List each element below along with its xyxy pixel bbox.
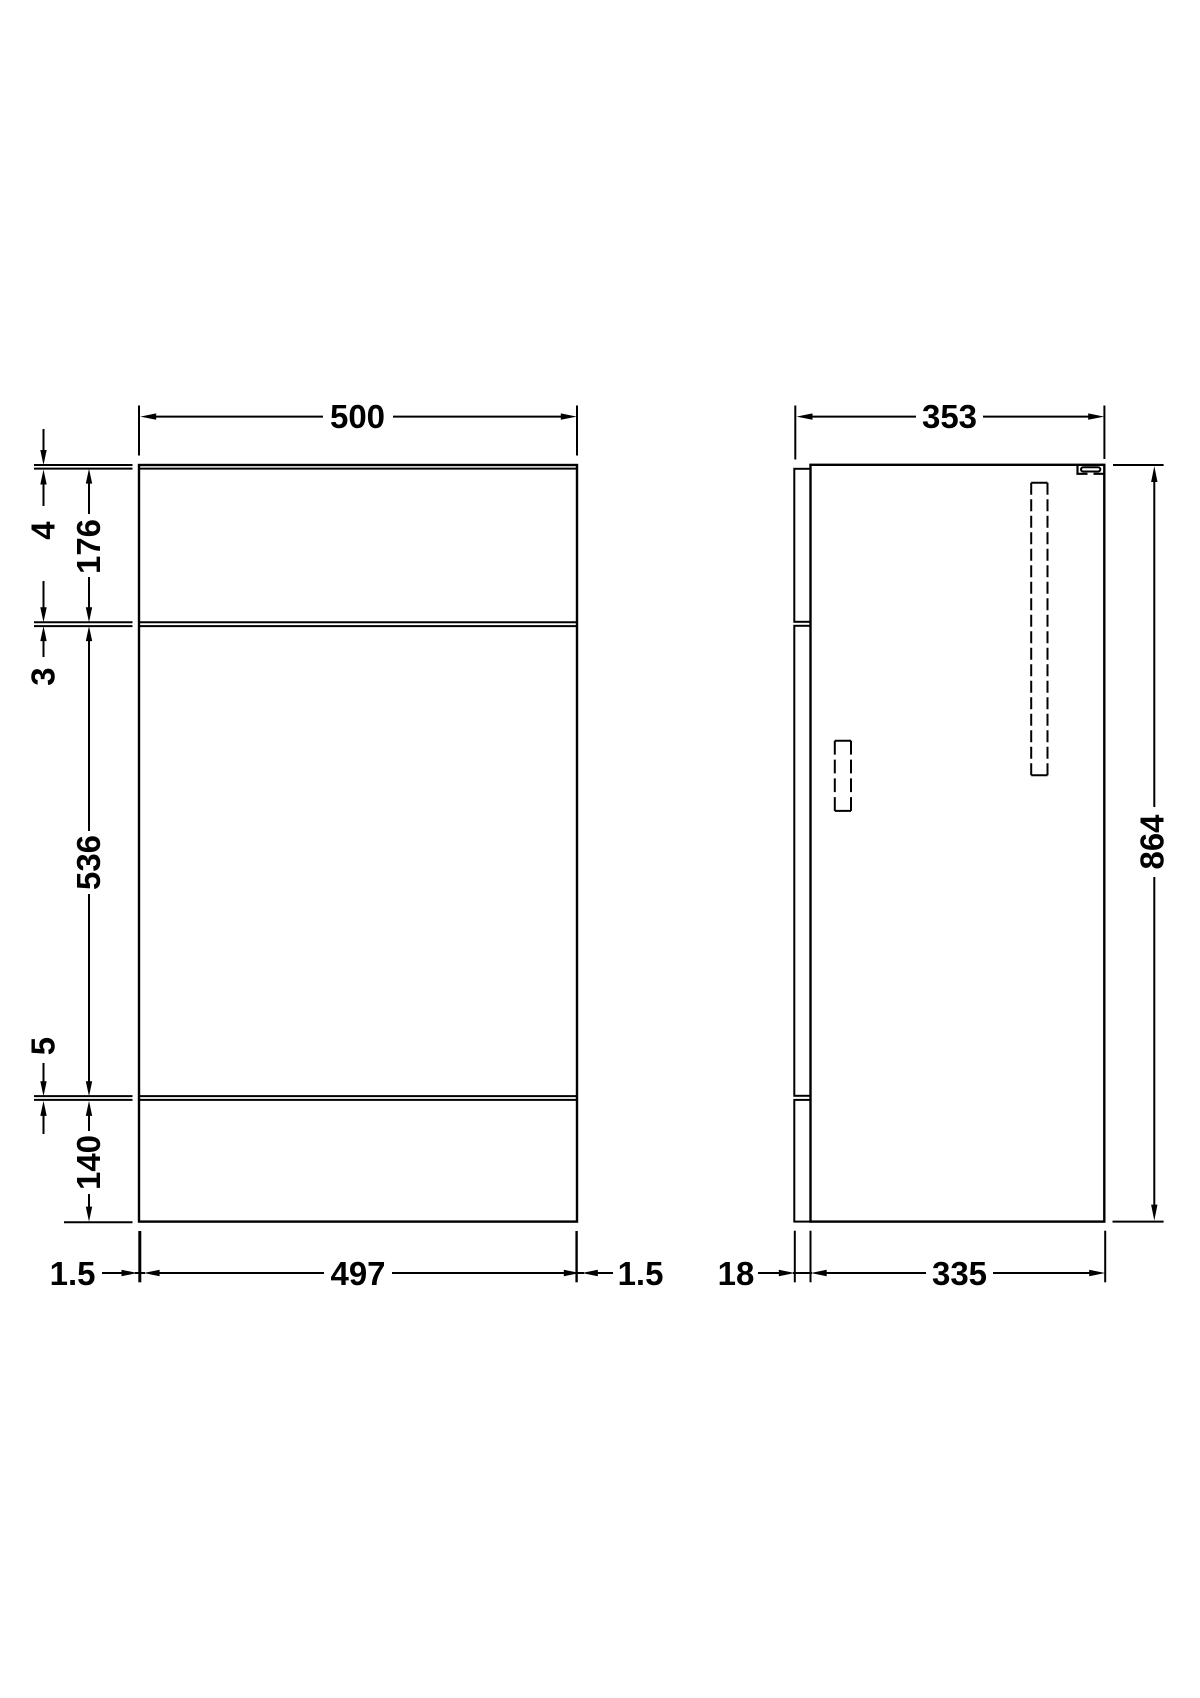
svg-text:864: 864 (1134, 814, 1171, 870)
svg-text:500: 500 (330, 398, 385, 435)
svg-text:1.5: 1.5 (618, 1255, 664, 1292)
svg-text:497: 497 (330, 1255, 385, 1292)
svg-text:335: 335 (932, 1255, 987, 1292)
svg-text:1.5: 1.5 (50, 1255, 96, 1292)
svg-text:18: 18 (718, 1255, 755, 1292)
svg-text:3: 3 (25, 667, 62, 685)
svg-text:353: 353 (922, 398, 977, 435)
svg-text:536: 536 (70, 835, 107, 890)
svg-text:4: 4 (25, 521, 62, 540)
svg-text:176: 176 (70, 519, 107, 574)
svg-text:5: 5 (25, 1037, 62, 1055)
svg-text:140: 140 (70, 1135, 107, 1190)
